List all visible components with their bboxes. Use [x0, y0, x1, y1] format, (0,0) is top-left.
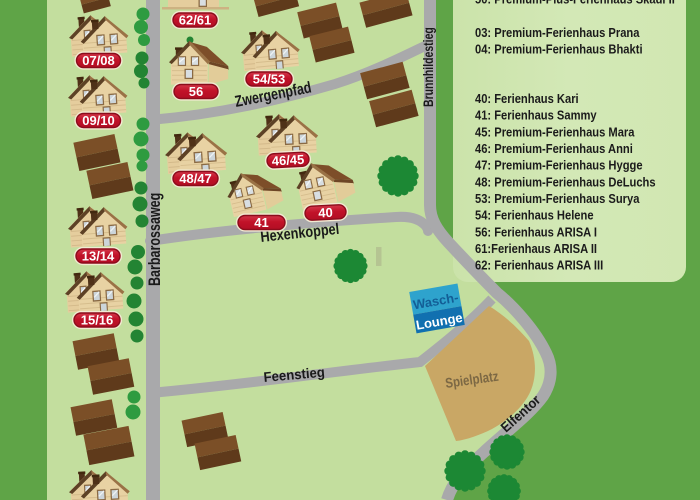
- svg-text:54: Ferienhaus Helene: 54: Ferienhaus Helene: [475, 208, 594, 223]
- svg-text:62/61: 62/61: [179, 13, 212, 28]
- svg-text:62: Ferienhaus ARISA III: 62: Ferienhaus ARISA III: [475, 258, 603, 273]
- svg-text:40: 40: [318, 205, 333, 221]
- svg-text:41: Ferienhaus Sammy: 41: Ferienhaus Sammy: [475, 108, 597, 123]
- svg-text:40: Ferienhaus Kari: 40: Ferienhaus Kari: [475, 91, 579, 106]
- svg-text:13/14: 13/14: [82, 249, 115, 264]
- svg-text:56: 56: [189, 84, 203, 99]
- svg-text:56: Ferienhaus ARISA I: 56: Ferienhaus ARISA I: [475, 225, 597, 240]
- svg-text:03: Premium-Ferienhaus Prana: 03: Premium-Ferienhaus Prana: [475, 25, 640, 40]
- svg-text:46/45: 46/45: [271, 152, 304, 169]
- svg-text:09/10: 09/10: [82, 113, 115, 128]
- svg-text:48: Premium-Ferienhaus DeLuchs: 48: Premium-Ferienhaus DeLuchs: [475, 175, 656, 190]
- svg-text:61:Ferienhaus ARISA II: 61:Ferienhaus ARISA II: [475, 241, 597, 256]
- svg-text:15/16: 15/16: [81, 313, 114, 328]
- svg-text:46: Premium-Ferienhaus Anni: 46: Premium-Ferienhaus Anni: [475, 141, 633, 156]
- svg-text:41: 41: [254, 215, 268, 230]
- svg-text:45: Premium-Ferienhaus Mara: 45: Premium-Ferienhaus Mara: [475, 125, 635, 140]
- svg-text:48/47: 48/47: [179, 171, 212, 186]
- svg-text:50: Premium-Plus-Ferienhaus Sk: 50: Premium-Plus-Ferienhaus Skadi II: [475, 0, 675, 7]
- svg-text:Barbarossaweg: Barbarossaweg: [146, 193, 164, 286]
- svg-text:04: Premium-Ferienhaus Bhakti: 04: Premium-Ferienhaus Bhakti: [475, 42, 643, 57]
- svg-text:54/53: 54/53: [253, 72, 286, 87]
- svg-text:53: Premium-Ferienhaus Surya: 53: Premium-Ferienhaus Surya: [475, 191, 640, 206]
- svg-text:Brunnhildestieg: Brunnhildestieg: [421, 27, 437, 107]
- svg-text:47: Premium-Ferienhaus Hygge: 47: Premium-Ferienhaus Hygge: [475, 158, 643, 173]
- svg-text:07/08: 07/08: [82, 53, 115, 68]
